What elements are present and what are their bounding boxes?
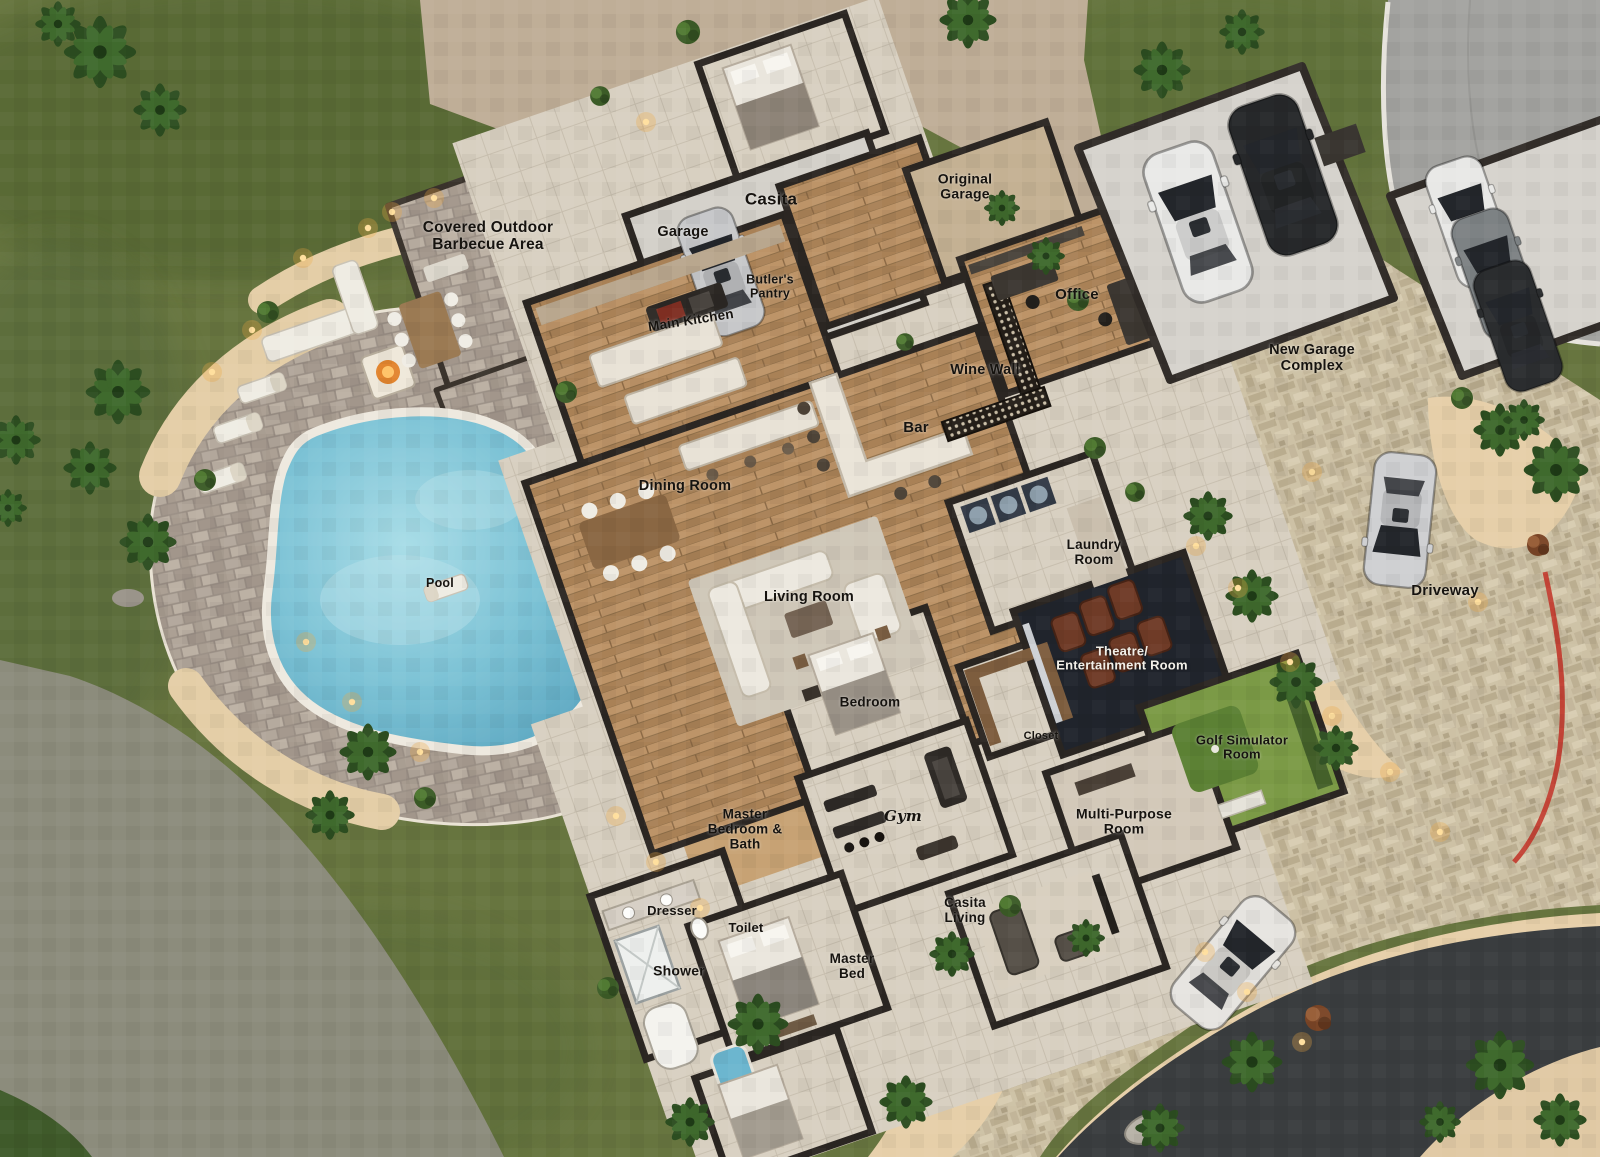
label-closet: Closet: [1024, 730, 1059, 742]
label-theatre-entertainment-room: Theatre/ Entertainment Room: [1052, 645, 1192, 674]
label-bar: Bar: [903, 420, 929, 437]
label-original-garage: Original Garage: [915, 172, 1015, 203]
estate-floor-plan: Covered Outdoor Barbecue Area Garage Cas…: [0, 0, 1600, 1157]
label-master-bedroom-bath: Master Bedroom & Bath: [704, 808, 786, 853]
label-dining-room: Dining Room: [639, 479, 731, 495]
label-butlers-pantry: Butler's Pantry: [733, 273, 807, 301]
label-casita-living: Casita Living: [930, 896, 1000, 926]
label-pool: Pool: [426, 577, 454, 591]
label-gym: Gym: [884, 808, 922, 825]
label-garage: Garage: [657, 225, 708, 241]
label-new-garage-complex: New Garage Complex: [1237, 343, 1387, 375]
label-multi-purpose-room: Multi-Purpose Room: [1057, 807, 1192, 838]
label-wine-wall: Wine Wall: [950, 363, 1020, 379]
label-dresser: Dresser: [647, 904, 697, 918]
label-driveway: Driveway: [1411, 583, 1478, 600]
pixel-texture: [0, 0, 1600, 1157]
label-office: Office: [1055, 287, 1099, 304]
label-shower: Shower: [653, 963, 705, 978]
label-living-room: Living Room: [764, 590, 854, 606]
label-bedroom: Bedroom: [840, 696, 901, 711]
floor-plan-rendering: [0, 0, 1600, 1157]
label-master-bed: Master Bed: [820, 952, 884, 982]
label-toilet: Toilet: [729, 921, 764, 935]
label-casita: Casita: [745, 191, 797, 210]
label-golf-simulator-room: Golf Simulator Room: [1190, 734, 1295, 763]
label-laundry-room: Laundry Room: [1054, 538, 1134, 568]
label-covered-outdoor-barbecue-area: Covered Outdoor Barbecue Area: [391, 219, 586, 253]
